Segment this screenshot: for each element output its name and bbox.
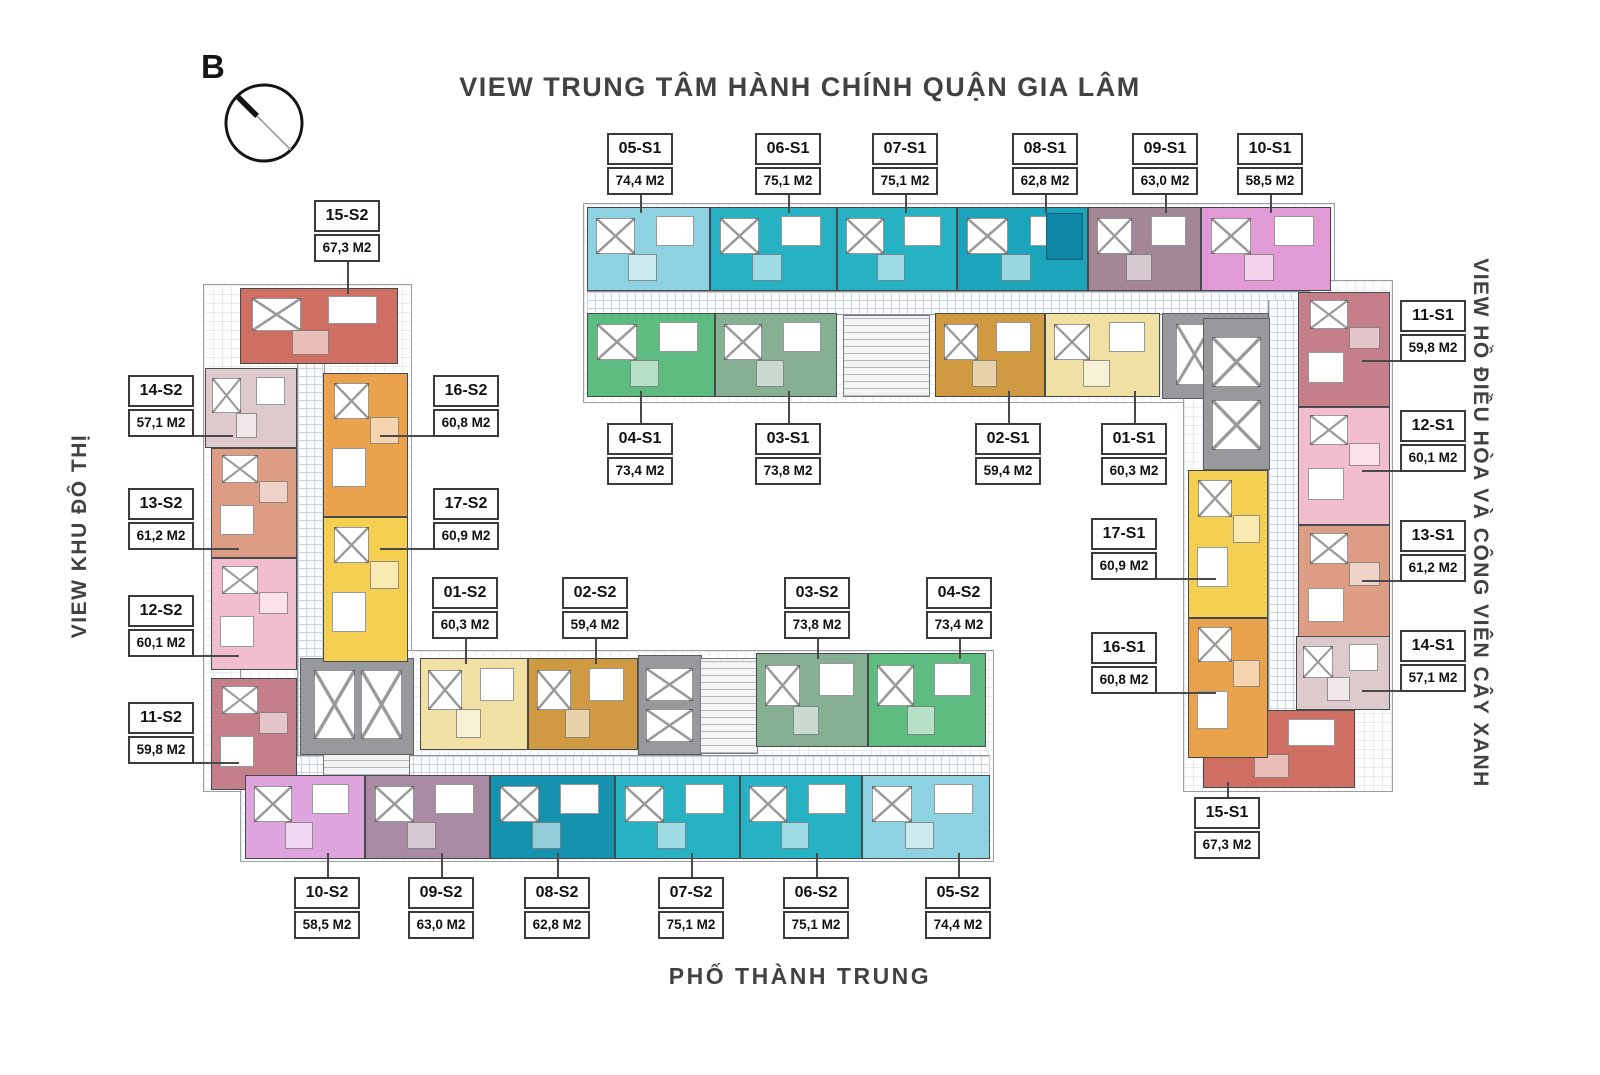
unit-id-text: 01-S2 — [432, 577, 498, 609]
room-cell — [905, 822, 935, 849]
unit-area-text: 67,3 M2 — [314, 234, 380, 262]
unit-01-S1[interactable] — [1045, 313, 1160, 397]
unit-14-S1[interactable] — [1296, 636, 1390, 710]
room-cell — [781, 216, 821, 246]
unit-07-S2[interactable] — [615, 775, 740, 859]
unit-area-text: 61,2 M2 — [1400, 554, 1466, 582]
unit-12-S1[interactable] — [1298, 407, 1390, 525]
room-cell — [1310, 300, 1348, 329]
unit-area-text: 62,8 M2 — [524, 911, 590, 939]
room-cell — [1083, 360, 1110, 387]
unit-label-08-S2[interactable]: 08-S262,8 M2 — [524, 877, 590, 935]
room-cell — [877, 254, 905, 281]
room-cell — [996, 322, 1030, 352]
room-cell — [967, 218, 1008, 254]
unit-area-text: 61,2 M2 — [128, 522, 194, 550]
unit-id-text: 03-S2 — [784, 577, 850, 609]
unit-id-text: 11-S1 — [1400, 300, 1466, 332]
unit-area-text: 59,4 M2 — [975, 457, 1041, 485]
room-cell — [428, 670, 462, 710]
leader-11-S2 — [194, 762, 239, 764]
leader-16-S2 — [380, 435, 433, 437]
unit-13-S2[interactable] — [211, 448, 297, 558]
room-cell — [328, 296, 377, 323]
unit-label-13-S1[interactable]: 13-S161,2 M2 — [1400, 520, 1466, 578]
leader-12-S2 — [194, 655, 239, 657]
elevator-shaft — [1212, 337, 1261, 387]
unit-area-text: 60,3 M2 — [1101, 457, 1167, 485]
unit-id-text: 05-S2 — [925, 877, 991, 909]
room-cell — [532, 822, 561, 849]
room-cell — [944, 324, 978, 360]
room-cell — [259, 712, 288, 734]
unit-label-09-S2[interactable]: 09-S263,0 M2 — [408, 877, 474, 935]
leader-14-S1 — [1362, 690, 1400, 692]
unit-id-text: 07-S2 — [658, 877, 724, 909]
room-cell — [370, 417, 399, 445]
unit-area-text: 63,0 M2 — [408, 911, 474, 939]
room-cell — [793, 706, 819, 736]
unit-04-S1[interactable] — [587, 313, 715, 397]
floor-plan-canvas: { "title": "VIEW TRUNG TÂM HÀNH CHÍNH QU… — [0, 0, 1600, 1075]
room-cell — [259, 481, 288, 502]
unit-area-text: 73,8 M2 — [755, 457, 821, 485]
room-cell — [1198, 480, 1231, 517]
unit-area-text: 60,1 M2 — [128, 629, 194, 657]
leader-03-S1 — [788, 391, 790, 423]
unit-label-05-S1[interactable]: 05-S174,4 M2 — [607, 133, 673, 191]
unit-id-text: 02-S1 — [975, 423, 1041, 455]
room-cell — [765, 665, 800, 706]
room-cell — [259, 592, 288, 614]
room-cell — [1310, 533, 1348, 564]
unit-area-text: 60,8 M2 — [1091, 666, 1157, 694]
unit-label-02-S2[interactable]: 02-S259,4 M2 — [562, 577, 628, 635]
room-cell — [872, 786, 912, 822]
unit-id-text: 10-S2 — [294, 877, 360, 909]
room-cell — [659, 322, 699, 352]
elevator-shaft — [314, 670, 354, 739]
leader-09-S1 — [1165, 193, 1167, 213]
unit-08-S1[interactable] — [957, 207, 1088, 291]
unit-10-S1[interactable] — [1201, 207, 1331, 291]
unit-area-text: 57,1 M2 — [128, 409, 194, 437]
unit-id-text: 04-S2 — [926, 577, 992, 609]
unit-id-text: 07-S1 — [872, 133, 938, 165]
leader-08-S1 — [1045, 193, 1047, 213]
unit-area-text: 60,1 M2 — [1400, 444, 1466, 472]
site-plan: 05-S174,4 M206-S175,1 M207-S175,1 M208-S… — [0, 0, 1600, 1075]
leader-13-S2 — [194, 548, 239, 550]
room-cell — [1303, 646, 1333, 678]
leader-17-S1 — [1157, 578, 1216, 580]
leader-06-S2 — [816, 853, 818, 877]
unit-area-text: 75,1 M2 — [783, 911, 849, 939]
unit-id-text: 08-S2 — [524, 877, 590, 909]
unit-06-S2[interactable] — [740, 775, 862, 859]
leader-02-S1 — [1008, 391, 1010, 423]
unit-id-text: 17-S1 — [1091, 518, 1157, 550]
leader-15-S2 — [347, 260, 349, 294]
room-cell — [212, 378, 241, 413]
leader-10-S2 — [327, 853, 329, 877]
unit-id-text: 06-S2 — [783, 877, 849, 909]
unit-id-text: 16-S2 — [433, 375, 499, 407]
room-cell — [656, 216, 694, 246]
unit-area-text: 75,1 M2 — [658, 911, 724, 939]
unit-area-text: 59,4 M2 — [562, 611, 628, 639]
leader-04-S2 — [959, 637, 961, 659]
room-cell — [1310, 415, 1348, 445]
unit-area-text: 74,4 M2 — [607, 167, 673, 195]
unit-label-01-S1[interactable]: 01-S160,3 M2 — [1101, 423, 1167, 481]
room-cell — [1349, 562, 1380, 586]
room-cell — [560, 784, 599, 814]
unit-area-text: 75,1 M2 — [755, 167, 821, 195]
unit-id-text: 14-S1 — [1400, 630, 1466, 662]
unit-02-S2[interactable] — [528, 658, 638, 750]
unit-id-text: 09-S1 — [1132, 133, 1198, 165]
leader-01-S1 — [1134, 391, 1136, 423]
unit-01-S2[interactable] — [420, 658, 528, 750]
room-cell — [808, 784, 846, 814]
unit-label-04-S2[interactable]: 04-S273,4 M2 — [926, 577, 992, 635]
unit-03-S2[interactable] — [756, 653, 868, 747]
room-cell — [1288, 719, 1335, 747]
room-cell — [749, 786, 787, 822]
unit-04-S2[interactable] — [868, 653, 986, 747]
unit-10-S2[interactable] — [245, 775, 365, 859]
room-cell — [756, 360, 784, 387]
room-cell — [1001, 254, 1031, 281]
unit-label-15-S2[interactable]: 15-S267,3 M2 — [314, 200, 380, 258]
room-cell — [407, 822, 436, 849]
unit-05-S1[interactable] — [587, 207, 710, 291]
unit-area-text: 60,9 M2 — [1091, 552, 1157, 580]
room-cell — [1308, 588, 1344, 621]
room-cell — [1046, 213, 1083, 260]
unit-17-S2[interactable] — [323, 517, 408, 662]
unit-label-16-S1[interactable]: 16-S160,8 M2 — [1091, 632, 1157, 690]
room-cell — [334, 527, 369, 563]
leader-07-S2 — [691, 853, 693, 877]
unit-11-S2[interactable] — [211, 678, 297, 790]
leader-12-S1 — [1362, 470, 1400, 472]
room-cell — [1349, 644, 1379, 670]
unit-17-S1[interactable] — [1188, 470, 1268, 618]
unit-area-text: 62,8 M2 — [1012, 167, 1078, 195]
room-cell — [500, 786, 539, 822]
stair-core-6 — [700, 658, 758, 754]
unit-area-text: 59,8 M2 — [1400, 334, 1466, 362]
unit-label-14-S1[interactable]: 14-S157,1 M2 — [1400, 630, 1466, 688]
unit-03-S1[interactable] — [715, 313, 837, 397]
unit-13-S1[interactable] — [1298, 525, 1390, 647]
room-cell — [589, 668, 623, 701]
room-cell — [752, 254, 782, 281]
unit-area-text: 60,3 M2 — [432, 611, 498, 639]
unit-label-10-S1[interactable]: 10-S158,5 M2 — [1237, 133, 1303, 191]
leader-08-S2 — [557, 853, 559, 877]
unit-area-text: 73,4 M2 — [607, 457, 673, 485]
leader-10-S1 — [1270, 193, 1272, 213]
leader-05-S1 — [640, 193, 642, 213]
elevator-core-5 — [638, 655, 702, 755]
room-cell — [1197, 547, 1229, 587]
room-cell — [254, 786, 291, 822]
unit-12-S2[interactable] — [211, 558, 297, 670]
leader-07-S1 — [905, 193, 907, 213]
room-cell — [781, 822, 809, 849]
leader-04-S1 — [640, 391, 642, 423]
room-cell — [819, 663, 854, 696]
elevator-core-1 — [1203, 318, 1270, 470]
room-cell — [783, 322, 821, 352]
room-cell — [904, 216, 941, 246]
elevator-shaft — [646, 709, 693, 742]
room-cell — [1211, 218, 1251, 254]
leader-14-S2 — [194, 435, 233, 437]
unit-16-S2[interactable] — [323, 373, 408, 517]
unit-id-text: 08-S1 — [1012, 133, 1078, 165]
unit-area-text: 73,4 M2 — [926, 611, 992, 639]
room-cell — [1327, 677, 1349, 701]
leader-05-S2 — [958, 853, 960, 877]
unit-label-06-S1[interactable]: 06-S175,1 M2 — [755, 133, 821, 191]
room-cell — [332, 448, 366, 487]
unit-label-07-S2[interactable]: 07-S275,1 M2 — [658, 877, 724, 935]
unit-area-text: 59,8 M2 — [128, 736, 194, 764]
unit-label-02-S1[interactable]: 02-S159,4 M2 — [975, 423, 1041, 481]
unit-id-text: 15-S1 — [1194, 797, 1260, 829]
unit-area-text: 63,0 M2 — [1132, 167, 1198, 195]
leader-09-S2 — [441, 853, 443, 877]
room-cell — [1274, 216, 1314, 246]
room-cell — [724, 324, 762, 360]
unit-id-text: 06-S1 — [755, 133, 821, 165]
unit-area-text: 58,5 M2 — [294, 911, 360, 939]
unit-label-17-S2[interactable]: 17-S260,9 M2 — [433, 488, 499, 546]
leader-02-S2 — [595, 637, 597, 664]
unit-id-text: 12-S1 — [1400, 410, 1466, 442]
unit-id-text: 02-S2 — [562, 577, 628, 609]
unit-area-text: 73,8 M2 — [784, 611, 850, 639]
room-cell — [1097, 218, 1132, 254]
unit-label-12-S1[interactable]: 12-S160,1 M2 — [1400, 410, 1466, 468]
unit-area-text: 67,3 M2 — [1194, 831, 1260, 859]
unit-label-13-S2[interactable]: 13-S261,2 M2 — [128, 488, 194, 546]
room-cell — [877, 665, 914, 706]
unit-id-text: 09-S2 — [408, 877, 474, 909]
unit-label-11-S1[interactable]: 11-S159,8 M2 — [1400, 300, 1466, 358]
unit-label-06-S2[interactable]: 06-S275,1 M2 — [783, 877, 849, 935]
room-cell — [1198, 627, 1231, 662]
unit-06-S1[interactable] — [710, 207, 837, 291]
unit-09-S1[interactable] — [1088, 207, 1201, 291]
room-cell — [292, 330, 328, 354]
unit-id-text: 11-S2 — [128, 702, 194, 734]
unit-area-text: 75,1 M2 — [872, 167, 938, 195]
room-cell — [1349, 327, 1380, 349]
room-cell — [934, 784, 974, 814]
unit-id-text: 15-S2 — [314, 200, 380, 232]
unit-08-S2[interactable] — [490, 775, 615, 859]
elevator-shaft — [361, 670, 401, 739]
unit-label-03-S1[interactable]: 03-S173,8 M2 — [755, 423, 821, 481]
unit-label-07-S1[interactable]: 07-S175,1 M2 — [872, 133, 938, 191]
leader-16-S1 — [1157, 692, 1216, 694]
unit-id-text: 03-S1 — [755, 423, 821, 455]
unit-11-S1[interactable] — [1298, 292, 1390, 407]
unit-label-01-S2[interactable]: 01-S260,3 M2 — [432, 577, 498, 635]
room-cell — [565, 709, 591, 738]
unit-area-text: 60,9 M2 — [433, 522, 499, 550]
unit-label-16-S2[interactable]: 16-S260,8 M2 — [433, 375, 499, 433]
unit-09-S2[interactable] — [365, 775, 490, 859]
room-cell — [256, 377, 285, 406]
unit-id-text: 12-S2 — [128, 595, 194, 627]
room-cell — [907, 706, 935, 736]
room-cell — [252, 298, 301, 331]
room-cell — [236, 413, 258, 438]
room-cell — [370, 561, 399, 589]
unit-id-text: 16-S1 — [1091, 632, 1157, 664]
leader-15-S1 — [1227, 782, 1229, 797]
leader-01-S2 — [465, 637, 467, 664]
elevator-core-4 — [300, 658, 414, 755]
room-cell — [628, 254, 657, 281]
unit-id-text: 17-S2 — [433, 488, 499, 520]
unit-area-text: 57,1 M2 — [1400, 664, 1466, 692]
room-cell — [1126, 254, 1152, 281]
unit-label-15-S1[interactable]: 15-S167,3 M2 — [1194, 797, 1260, 855]
unit-02-S1[interactable] — [935, 313, 1045, 397]
leader-13-S1 — [1362, 580, 1400, 582]
leader-11-S1 — [1362, 360, 1400, 362]
unit-label-08-S1[interactable]: 08-S162,8 M2 — [1012, 133, 1078, 191]
unit-label-17-S1[interactable]: 17-S160,9 M2 — [1091, 518, 1157, 576]
room-cell — [625, 786, 664, 822]
unit-id-text: 05-S1 — [607, 133, 673, 165]
unit-id-text: 10-S1 — [1237, 133, 1303, 165]
room-cell — [220, 616, 254, 647]
unit-label-03-S2[interactable]: 03-S273,8 M2 — [784, 577, 850, 635]
room-cell — [657, 822, 686, 849]
room-cell — [1349, 443, 1380, 466]
corridor-0 — [587, 291, 1310, 315]
room-cell — [480, 668, 514, 701]
unit-id-text: 13-S2 — [128, 488, 194, 520]
leader-06-S1 — [788, 193, 790, 213]
room-cell — [456, 709, 481, 738]
room-cell — [220, 505, 254, 535]
room-cell — [375, 786, 414, 822]
unit-label-11-S2[interactable]: 11-S259,8 M2 — [128, 702, 194, 760]
unit-label-10-S2[interactable]: 10-S258,5 M2 — [294, 877, 360, 935]
unit-id-text: 04-S1 — [607, 423, 673, 455]
room-cell — [1109, 322, 1145, 352]
room-cell — [222, 566, 258, 594]
room-cell — [685, 784, 724, 814]
room-cell — [332, 592, 366, 631]
room-cell — [1197, 691, 1229, 729]
elevator-shaft — [646, 668, 693, 701]
unit-07-S1[interactable] — [837, 207, 957, 291]
unit-05-S2[interactable] — [862, 775, 990, 859]
unit-area-text: 74,4 M2 — [925, 911, 991, 939]
room-cell — [1308, 468, 1344, 500]
room-cell — [312, 784, 349, 814]
room-cell — [630, 360, 660, 387]
room-cell — [222, 455, 258, 483]
room-cell — [537, 670, 571, 710]
unit-label-05-S2[interactable]: 05-S274,4 M2 — [925, 877, 991, 935]
unit-label-09-S1[interactable]: 09-S163,0 M2 — [1132, 133, 1198, 191]
leader-03-S2 — [817, 637, 819, 659]
room-cell — [1054, 324, 1090, 360]
room-cell — [1233, 660, 1260, 687]
unit-area-text: 60,8 M2 — [433, 409, 499, 437]
unit-label-14-S2[interactable]: 14-S257,1 M2 — [128, 375, 194, 433]
stair-core-2 — [843, 315, 930, 397]
room-cell — [1244, 254, 1274, 281]
room-cell — [334, 383, 369, 419]
unit-id-text: 01-S1 — [1101, 423, 1167, 455]
unit-id-text: 13-S1 — [1400, 520, 1466, 552]
unit-15-S2[interactable] — [240, 288, 398, 364]
elevator-shaft — [1212, 400, 1261, 450]
room-cell — [934, 663, 971, 696]
room-cell — [1151, 216, 1186, 246]
room-cell — [1233, 515, 1260, 543]
room-cell — [435, 784, 474, 814]
room-cell — [720, 218, 760, 254]
room-cell — [597, 324, 637, 360]
room-cell — [596, 218, 634, 254]
unit-label-12-S2[interactable]: 12-S260,1 M2 — [128, 595, 194, 653]
leader-17-S2 — [380, 548, 433, 550]
room-cell — [285, 822, 313, 849]
room-cell — [1308, 352, 1344, 383]
room-cell — [972, 360, 998, 387]
unit-id-text: 14-S2 — [128, 375, 194, 407]
room-cell — [846, 218, 883, 254]
room-cell — [222, 686, 258, 714]
unit-area-text: 58,5 M2 — [1237, 167, 1303, 195]
unit-label-04-S1[interactable]: 04-S173,4 M2 — [607, 423, 673, 481]
unit-16-S1[interactable] — [1188, 618, 1268, 758]
